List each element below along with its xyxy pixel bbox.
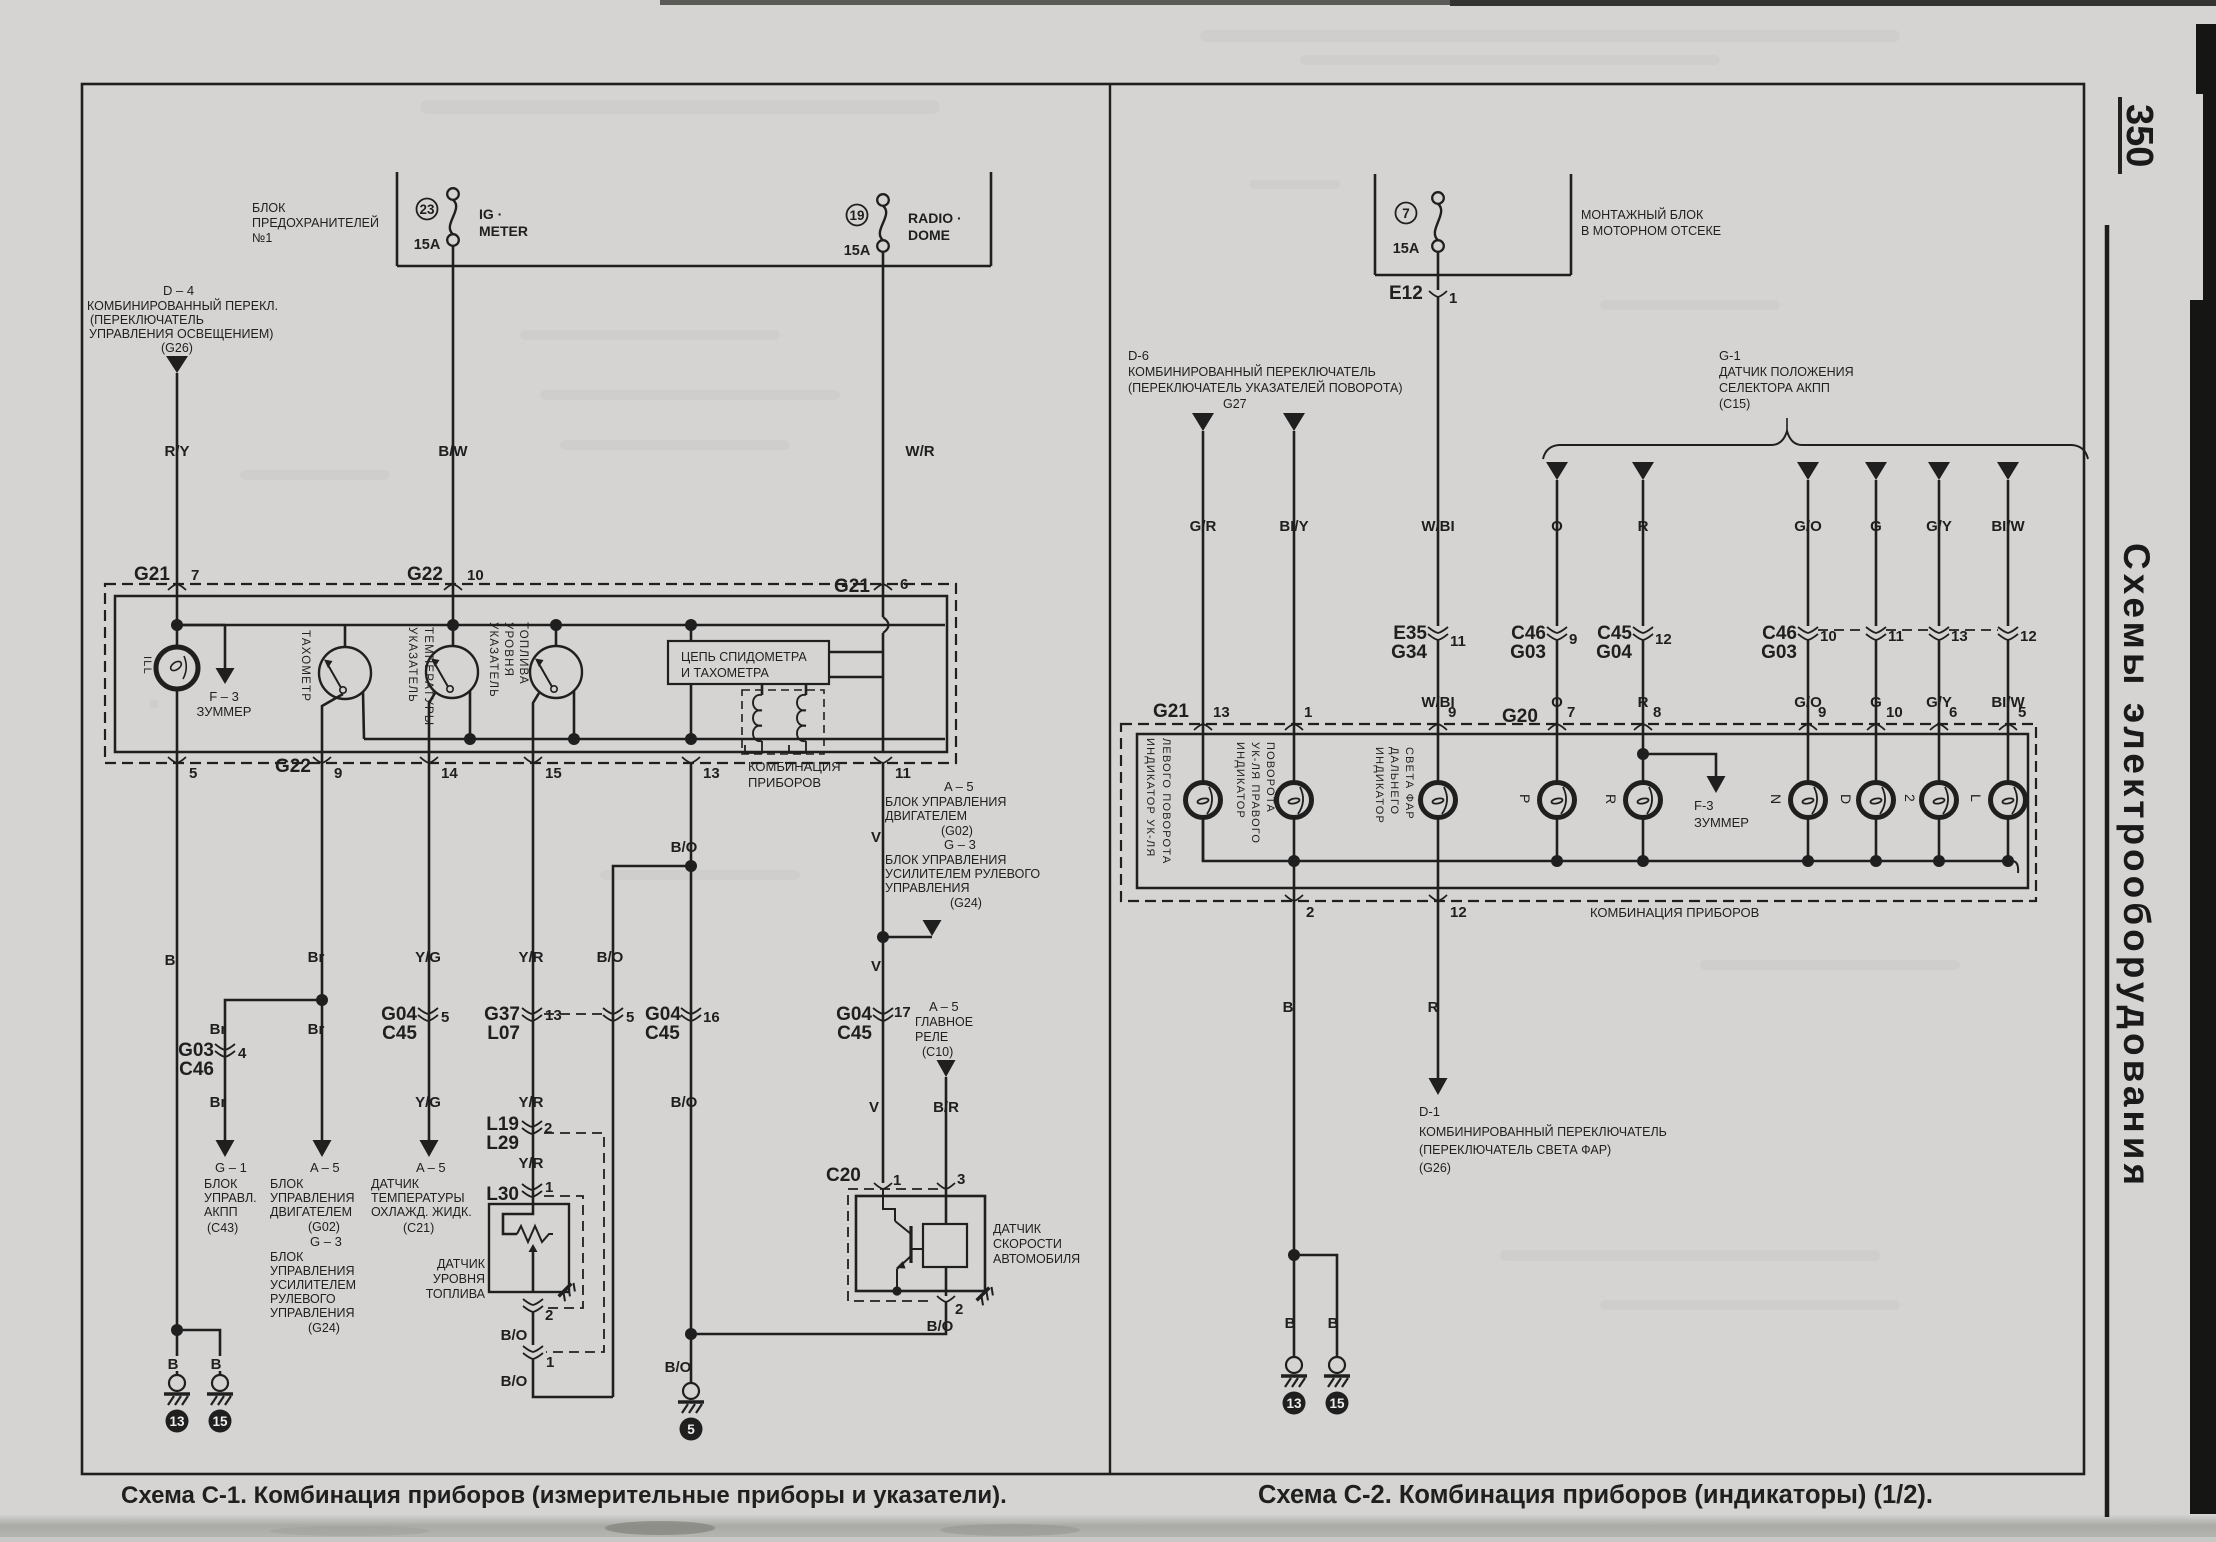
svg-text:МОНТАЖНЫЙ БЛОК: МОНТАЖНЫЙ БЛОК [1581, 207, 1704, 222]
svg-text:13: 13 [703, 765, 720, 782]
svg-text:БЛОК УПРАВЛЕНИЯ: БЛОК УПРАВЛЕНИЯ [885, 853, 1006, 867]
svg-text:D – 4: D – 4 [163, 283, 194, 298]
svg-text:(G26): (G26) [161, 341, 193, 355]
svg-text:КОМБИНИРОВАННЫЙ ПЕРЕКЛЮЧАТЕЛЬ: КОМБИНИРОВАННЫЙ ПЕРЕКЛЮЧАТЕЛЬ [1419, 1124, 1667, 1139]
svg-text:B/R: B/R [933, 1099, 959, 1116]
svg-text:A – 5: A – 5 [929, 999, 959, 1014]
svg-text:УРОВНЯ: УРОВНЯ [433, 1272, 485, 1286]
svg-text:(ПЕРЕКЛЮЧАТЕЛЬ УКАЗАТЕЛЕЙ ПОВО: (ПЕРЕКЛЮЧАТЕЛЬ УКАЗАТЕЛЕЙ ПОВОРОТА) [1128, 380, 1403, 395]
svg-text:БЛОК: БЛОК [270, 1177, 304, 1191]
svg-text:Br: Br [210, 1021, 227, 1038]
svg-text:L19: L19 [486, 1114, 519, 1135]
svg-text:B: B [168, 1356, 179, 1373]
svg-text:B: B [1328, 1315, 1339, 1332]
svg-text:6: 6 [1949, 704, 1957, 721]
svg-text:L: L [1968, 794, 1984, 803]
svg-text:G34: G34 [1391, 642, 1427, 663]
svg-text:G03: G03 [178, 1040, 214, 1061]
svg-text:11: 11 [1450, 633, 1466, 650]
svg-text:РЕЛЕ: РЕЛЕ [915, 1030, 948, 1044]
svg-text:B: B [1285, 1315, 1296, 1332]
svg-text:ПРИБОРОВ: ПРИБОРОВ [748, 775, 821, 790]
svg-text:350: 350 [2118, 104, 2160, 167]
svg-text:G – 3: G – 3 [310, 1234, 342, 1249]
svg-text:ТАХОМЕТР: ТАХОМЕТР [299, 630, 311, 702]
svg-text:G/O: G/O [1794, 518, 1822, 535]
svg-text:N: N [1768, 794, 1784, 805]
svg-text:СКОРОСТИ: СКОРОСТИ [993, 1237, 1062, 1251]
svg-text:5: 5 [189, 765, 197, 782]
svg-text:C45: C45 [382, 1023, 417, 1044]
svg-text:V: V [871, 829, 881, 846]
svg-text:1: 1 [546, 1354, 554, 1371]
svg-text:(G24): (G24) [950, 896, 982, 910]
svg-text:Y/G: Y/G [415, 949, 441, 966]
svg-text:O: O [1551, 518, 1563, 535]
svg-text:ДАТЧИК: ДАТЧИК [371, 1177, 420, 1191]
svg-text:10: 10 [1886, 704, 1903, 721]
svg-text:3: 3 [957, 1171, 965, 1188]
svg-text:ПРЕДОХРАНИТЕЛЕЙ: ПРЕДОХРАНИТЕЛЕЙ [252, 215, 379, 230]
svg-text:КОМБИНИРОВАННЫЙ ПЕРЕКЛ.: КОМБИНИРОВАННЫЙ ПЕРЕКЛ. [87, 298, 278, 313]
svg-text:7: 7 [1402, 206, 1410, 221]
svg-text:СЕЛЕКТОРА АКПП: СЕЛЕКТОРА АКПП [1719, 381, 1830, 395]
svg-text:7: 7 [191, 567, 199, 584]
svg-text:15A: 15A [1393, 241, 1420, 257]
svg-text:(ПЕРЕКЛЮЧАТЕЛЬ: (ПЕРЕКЛЮЧАТЕЛЬ [90, 313, 204, 327]
svg-text:R: R [1603, 794, 1619, 805]
svg-text:ИНДИКАТОР УК-ЛЯ: ИНДИКАТОР УК-ЛЯ [1144, 738, 1156, 858]
svg-text:G27: G27 [1223, 397, 1247, 411]
svg-text:V: V [871, 958, 881, 975]
svg-text:23: 23 [419, 202, 435, 217]
svg-text:G04: G04 [836, 1004, 872, 1025]
svg-text:B/O: B/O [501, 1327, 528, 1344]
svg-text:ОХЛАЖД. ЖИДК.: ОХЛАЖД. ЖИДК. [371, 1205, 472, 1219]
svg-text:B: B [211, 1356, 222, 1373]
svg-text:УПРАВЛЕНИЯ: УПРАВЛЕНИЯ [270, 1191, 355, 1205]
svg-text:ЛЕВОГО ПОВОРОТА: ЛЕВОГО ПОВОРОТА [1160, 738, 1172, 864]
svg-text:G03: G03 [1510, 642, 1546, 663]
svg-text:B/O: B/O [597, 949, 624, 966]
svg-text:15A: 15A [844, 243, 871, 259]
svg-text:8: 8 [1653, 704, 1661, 721]
svg-text:W/BI: W/BI [1421, 518, 1454, 535]
svg-text:METER: METER [479, 223, 528, 239]
svg-text:5: 5 [441, 1009, 449, 1026]
svg-text:ЗУММЕР: ЗУММЕР [1694, 815, 1749, 830]
svg-text:И ТАХОМЕТРА: И ТАХОМЕТРА [681, 666, 770, 680]
svg-text:G22: G22 [407, 564, 443, 585]
svg-text:L07: L07 [487, 1023, 520, 1044]
svg-text:ТЕМПЕРАТУРЫ: ТЕМПЕРАТУРЫ [371, 1191, 465, 1205]
svg-text:7: 7 [1567, 704, 1575, 721]
svg-text:16: 16 [703, 1009, 720, 1026]
svg-text:B/O: B/O [671, 1094, 698, 1111]
svg-text:Схемы электрооборудования: Схемы электрооборудования [2116, 543, 2157, 1189]
svg-text:Y/R: Y/R [518, 1155, 543, 1172]
svg-text:W/R: W/R [905, 443, 934, 460]
svg-text:B/W: B/W [438, 443, 468, 460]
svg-text:9: 9 [1448, 704, 1456, 721]
svg-text:1: 1 [1304, 704, 1312, 721]
svg-text:6: 6 [900, 576, 908, 593]
svg-text:D-1: D-1 [1419, 1104, 1440, 1119]
svg-text:(G02): (G02) [941, 824, 973, 838]
svg-text:УСИЛИТЕЛЕМ: УСИЛИТЕЛЕМ [270, 1278, 356, 1292]
svg-text:(ПЕРЕКЛЮЧАТЕЛЬ СВЕТА ФАР): (ПЕРЕКЛЮЧАТЕЛЬ СВЕТА ФАР) [1419, 1143, 1611, 1157]
svg-text:9: 9 [1569, 631, 1577, 648]
svg-text:15A: 15A [414, 237, 441, 253]
svg-text:Y/R: Y/R [518, 949, 543, 966]
svg-text:A – 5: A – 5 [416, 1160, 446, 1175]
svg-text:11: 11 [895, 765, 911, 782]
svg-text:Y/R: Y/R [518, 1094, 543, 1111]
svg-text:КОМБИНАЦИЯ ПРИБОРОВ: КОМБИНАЦИЯ ПРИБОРОВ [1590, 905, 1759, 920]
svg-text:C45: C45 [645, 1023, 680, 1044]
svg-text:ГЛАВНОЕ: ГЛАВНОЕ [915, 1015, 973, 1029]
svg-text:F-3: F-3 [1694, 798, 1714, 813]
svg-text:ILL: ILL [141, 656, 153, 675]
svg-text:L30: L30 [486, 1184, 519, 1205]
svg-text:4: 4 [238, 1045, 247, 1062]
svg-text:B/O: B/O [671, 839, 698, 856]
svg-text:2: 2 [955, 1301, 963, 1318]
svg-text:(C43): (C43) [207, 1221, 238, 1235]
svg-text:2: 2 [1902, 794, 1918, 803]
svg-text:C45: C45 [837, 1023, 872, 1044]
svg-text:2: 2 [544, 1120, 552, 1137]
svg-text:УПРАВЛЕНИЯ: УПРАВЛЕНИЯ [270, 1264, 355, 1278]
svg-text:2: 2 [545, 1307, 553, 1324]
svg-text:G04: G04 [645, 1004, 681, 1025]
svg-text:(G24): (G24) [308, 1321, 340, 1335]
svg-text:D-6: D-6 [1128, 348, 1149, 363]
svg-text:УПРАВЛ.: УПРАВЛ. [204, 1191, 257, 1205]
svg-text:B/O: B/O [927, 1318, 954, 1335]
svg-text:ДВИГАТЕЛЕМ: ДВИГАТЕЛЕМ [270, 1205, 352, 1219]
svg-text:G/Y: G/Y [1926, 518, 1952, 535]
svg-text:G04: G04 [1596, 642, 1632, 663]
svg-text:10: 10 [467, 567, 484, 584]
svg-text:Схема С-2. Комбинация приборов: Схема С-2. Комбинация приборов (индикато… [1258, 1481, 1933, 1509]
svg-text:G21: G21 [134, 564, 170, 585]
svg-text:B: B [1283, 999, 1294, 1016]
svg-text:G/R: G/R [1190, 518, 1217, 535]
svg-text:БЛОК УПРАВЛЕНИЯ: БЛОК УПРАВЛЕНИЯ [885, 795, 1006, 809]
svg-text:G37: G37 [484, 1004, 520, 1025]
svg-text:АВТОМОБИЛЯ: АВТОМОБИЛЯ [993, 1252, 1080, 1266]
svg-text:F – 3: F – 3 [209, 689, 239, 704]
svg-text:B: B [165, 952, 176, 969]
svg-text:УРОВНЯ: УРОВНЯ [502, 622, 514, 677]
svg-text:ТОПЛИВА: ТОПЛИВА [426, 1287, 486, 1301]
svg-text:РУЛЕВОГО: РУЛЕВОГО [270, 1292, 336, 1306]
svg-text:B/O: B/O [665, 1359, 692, 1376]
svg-text:B/O: B/O [501, 1373, 528, 1390]
svg-text:Br: Br [308, 1021, 325, 1038]
svg-text:ДАЛЬНЕГО: ДАЛЬНЕГО [1388, 747, 1400, 815]
svg-text:КОМБИНИРОВАННЫЙ ПЕРЕКЛЮЧАТЕЛЬ: КОМБИНИРОВАННЫЙ ПЕРЕКЛЮЧАТЕЛЬ [1128, 364, 1376, 379]
svg-text:(G26): (G26) [1419, 1161, 1451, 1175]
svg-text:RADIO ·: RADIO · [908, 210, 962, 226]
svg-text:ИНДИКАТОР: ИНДИКАТОР [1234, 742, 1246, 819]
svg-text:ЦЕПЬ СПИДОМЕТРА: ЦЕПЬ СПИДОМЕТРА [681, 650, 807, 664]
svg-text:V: V [869, 1099, 879, 1116]
svg-text:L29: L29 [486, 1133, 519, 1154]
svg-text:УКАЗАТЕЛЬ: УКАЗАТЕЛЬ [487, 622, 499, 698]
svg-text:В МОТОРНОМ ОТСЕКЕ: В МОТОРНОМ ОТСЕКЕ [1581, 224, 1721, 238]
svg-text:R: R [1638, 518, 1649, 535]
svg-text:13: 13 [1286, 1396, 1302, 1411]
svg-text:BI/Y: BI/Y [1279, 518, 1308, 535]
svg-text:G21: G21 [1153, 701, 1189, 722]
svg-text:15: 15 [212, 1414, 228, 1429]
svg-text:5: 5 [687, 1422, 695, 1437]
svg-text:Схема С-1. Комбинация приборов: Схема С-1. Комбинация приборов (измерите… [121, 1482, 1007, 1509]
svg-text:D: D [1838, 794, 1854, 805]
svg-text:Br: Br [308, 949, 325, 966]
svg-text:2: 2 [1306, 904, 1314, 921]
svg-text:13: 13 [1213, 704, 1230, 721]
svg-text:R/Y: R/Y [164, 443, 189, 460]
svg-text:АКПП: АКПП [204, 1205, 238, 1219]
svg-text:15: 15 [1329, 1396, 1345, 1411]
svg-text:C45: C45 [1597, 623, 1632, 644]
svg-text:12: 12 [2020, 628, 2037, 645]
svg-text:C46: C46 [1762, 623, 1797, 644]
svg-text:(G02): (G02) [308, 1220, 340, 1234]
svg-text:№1: №1 [252, 231, 272, 245]
svg-text:УК-ЛЯ ПРАВОГО: УК-ЛЯ ПРАВОГО [1249, 742, 1261, 844]
svg-text:BI/W: BI/W [1991, 518, 2025, 535]
svg-text:G – 1: G – 1 [215, 1160, 247, 1175]
svg-text:P: P [1517, 794, 1533, 805]
svg-text:14: 14 [441, 765, 458, 782]
svg-text:ДАТЧИК ПОЛОЖЕНИЯ: ДАТЧИК ПОЛОЖЕНИЯ [1719, 365, 1854, 379]
svg-text:G22: G22 [275, 756, 311, 777]
svg-text:C46: C46 [1511, 623, 1546, 644]
svg-text:КОМБИНАЦИЯ: КОМБИНАЦИЯ [748, 759, 841, 774]
svg-text:БЛОК: БЛОК [252, 201, 286, 215]
svg-text:G-1: G-1 [1719, 348, 1741, 363]
svg-text:G03: G03 [1761, 642, 1797, 663]
svg-text:1: 1 [1449, 290, 1457, 307]
svg-text:УСИЛИТЕЛЕМ РУЛЕВОГО: УСИЛИТЕЛЕМ РУЛЕВОГО [885, 867, 1040, 881]
svg-text:DOME: DOME [908, 227, 950, 243]
svg-text:ПОВОРОТА: ПОВОРОТА [1264, 742, 1276, 813]
svg-text:G21: G21 [834, 576, 870, 597]
svg-text:G20: G20 [1502, 706, 1538, 727]
svg-text:9: 9 [334, 765, 342, 782]
svg-text:15: 15 [545, 765, 562, 782]
svg-text:БЛОК: БЛОК [270, 1250, 304, 1264]
svg-text:E12: E12 [1389, 283, 1423, 304]
svg-text:A – 5: A – 5 [310, 1160, 340, 1175]
svg-text:17: 17 [894, 1004, 911, 1021]
svg-text:УКАЗАТЕЛЬ: УКАЗАТЕЛЬ [406, 627, 418, 703]
svg-text:УПРАВЛЕНИЯ: УПРАВЛЕНИЯ [270, 1306, 355, 1320]
svg-text:5: 5 [2018, 704, 2026, 721]
svg-text:СВЕТА ФАР: СВЕТА ФАР [1403, 747, 1415, 820]
svg-text:ТОПЛИВА: ТОПЛИВА [517, 622, 529, 685]
svg-text:Br: Br [210, 1094, 227, 1111]
svg-text:C20: C20 [826, 1165, 861, 1186]
svg-text:1: 1 [545, 1179, 553, 1196]
svg-text:12: 12 [1655, 631, 1672, 648]
svg-text:(C15): (C15) [1719, 397, 1750, 411]
svg-text:12: 12 [1450, 904, 1467, 921]
svg-text:ИНДИКАТОР: ИНДИКАТОР [1373, 747, 1385, 824]
svg-text:C46: C46 [179, 1059, 214, 1080]
svg-text:G04: G04 [381, 1004, 417, 1025]
svg-text:G – 3: G – 3 [944, 837, 976, 852]
svg-text:БЛОК: БЛОК [204, 1177, 238, 1191]
svg-text:ЗУММЕР: ЗУММЕР [197, 704, 252, 719]
svg-text:G: G [1870, 518, 1882, 535]
svg-text:E35: E35 [1393, 623, 1427, 644]
svg-text:IG ·: IG · [479, 206, 502, 222]
svg-text:13: 13 [545, 1007, 562, 1024]
svg-text:ДАТЧИК: ДАТЧИК [993, 1222, 1042, 1236]
svg-text:R: R [1428, 999, 1439, 1016]
svg-text:13: 13 [169, 1414, 185, 1429]
svg-text:ДВИГАТЕЛЕМ: ДВИГАТЕЛЕМ [885, 809, 967, 823]
svg-text:Y/G: Y/G [415, 1094, 441, 1111]
svg-text:1: 1 [893, 1172, 901, 1189]
svg-text:A – 5: A – 5 [944, 779, 974, 794]
svg-text:(C21): (C21) [403, 1221, 434, 1235]
svg-text:5: 5 [626, 1009, 634, 1026]
svg-text:ДАТЧИК: ДАТЧИК [437, 1257, 486, 1271]
svg-text:9: 9 [1818, 704, 1826, 721]
svg-text:УПРАВЛЕНИЯ ОСВЕЩЕНИЕМ): УПРАВЛЕНИЯ ОСВЕЩЕНИЕМ) [89, 327, 273, 341]
svg-text:(C10): (C10) [922, 1045, 953, 1059]
svg-text:19: 19 [849, 208, 864, 223]
svg-text:УПРАВЛЕНИЯ: УПРАВЛЕНИЯ [885, 881, 970, 895]
